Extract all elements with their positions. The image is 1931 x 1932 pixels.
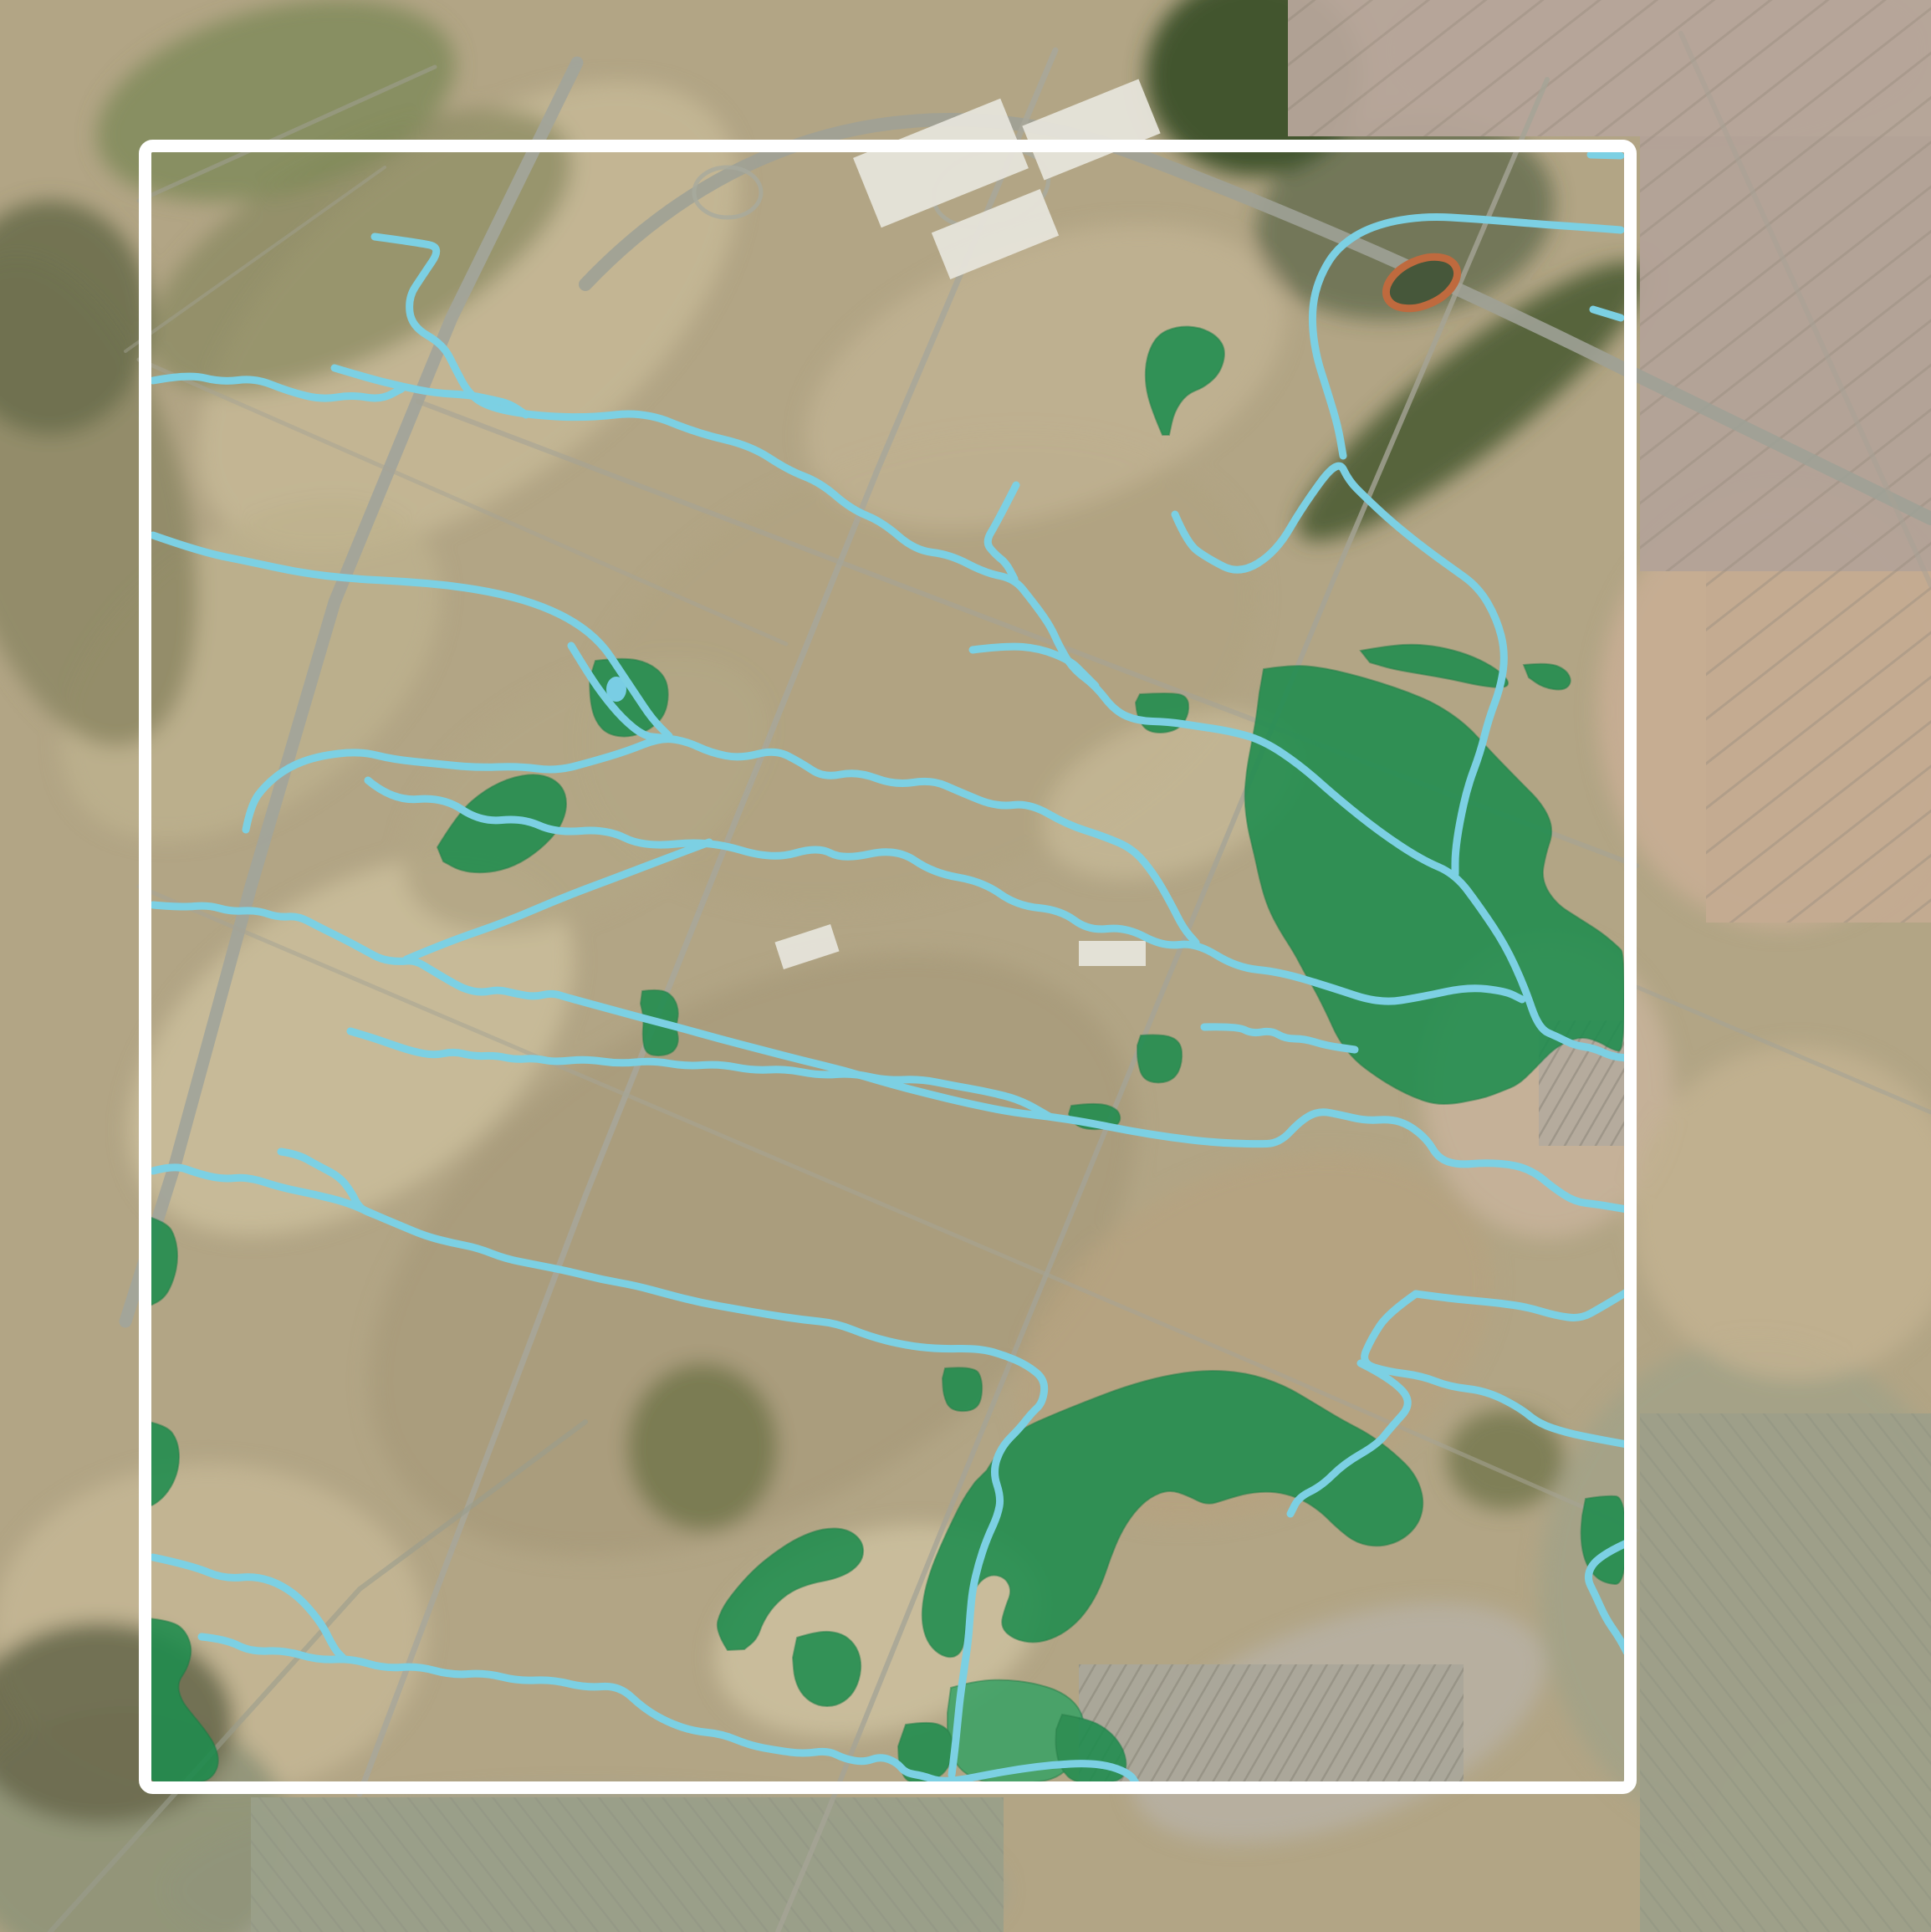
suburb-texture [1640,1413,1931,1932]
stream-line-s5c [1591,155,1621,156]
terrain-patch [627,1363,778,1531]
residential-texture [1640,136,1931,571]
map-screenshot[interactable] [0,0,1931,1932]
greenspace-polygon-g16 [943,1367,982,1411]
herringbone-texture [1079,1664,1464,1790]
greenspace-polygon-g19 [793,1632,861,1706]
suburb-texture [251,1797,1004,1932]
residential-texture [1288,0,1931,136]
greenspace-polygon-g7 [1137,1035,1182,1082]
residential-texture [1706,571,1931,923]
map-canvas[interactable] [0,0,1931,1932]
industrial-roof [1079,941,1146,966]
